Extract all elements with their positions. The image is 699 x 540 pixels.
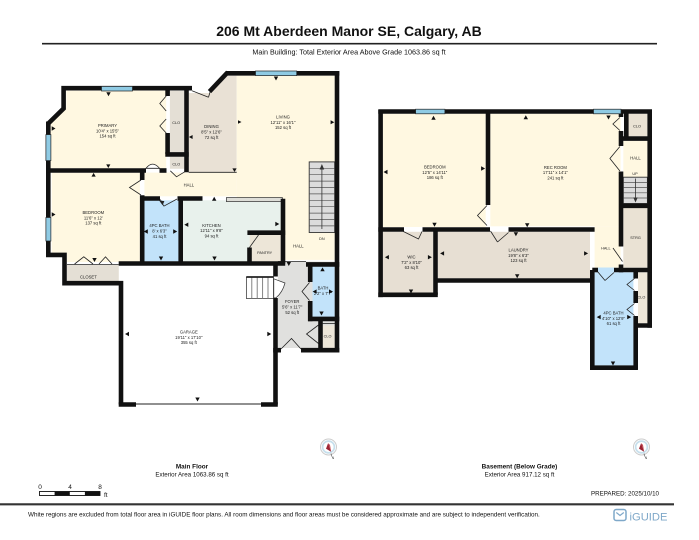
- svg-text:5'6" x 11'7": 5'6" x 11'7": [282, 305, 303, 310]
- svg-text:8: 8: [98, 484, 102, 491]
- svg-text:4'10" x 12'9": 4'10" x 12'9": [602, 316, 625, 321]
- svg-text:8'5" x 12'6": 8'5" x 12'6": [201, 130, 222, 135]
- svg-text:152 sq ft: 152 sq ft: [275, 125, 292, 130]
- svg-text:DN: DN: [319, 237, 325, 241]
- svg-text:LAUNDRY: LAUNDRY: [509, 248, 529, 253]
- svg-text:CLO: CLO: [172, 121, 180, 125]
- svg-text:4: 4: [68, 484, 72, 491]
- svg-text:12'5" x 14'11": 12'5" x 14'11": [422, 170, 447, 175]
- svg-text:72 sq ft: 72 sq ft: [205, 135, 220, 140]
- svg-text:WIC: WIC: [407, 255, 415, 260]
- svg-text:41 sq ft: 41 sq ft: [153, 234, 168, 239]
- svg-text:123 sq ft: 123 sq ft: [510, 258, 527, 263]
- svg-text:94 sq ft: 94 sq ft: [205, 234, 220, 239]
- svg-text:12'11" x 16'1": 12'11" x 16'1": [271, 120, 296, 125]
- svg-text:BATH: BATH: [318, 286, 329, 291]
- svg-text:CLOSET: CLOSET: [80, 274, 97, 279]
- svg-text:7'2" x 8'10": 7'2" x 8'10": [401, 260, 422, 265]
- svg-text:FOYER: FOYER: [285, 299, 299, 304]
- svg-text:355 sq ft: 355 sq ft: [181, 340, 198, 345]
- svg-text:4PC BATH: 4PC BATH: [149, 223, 169, 228]
- svg-text:White regions are excluded fro: White regions are excluded from total fl…: [28, 512, 540, 519]
- svg-text:206 Mt Aberdeen Manor SE, Calg: 206 Mt Aberdeen Manor SE, Calgary, AB: [216, 23, 482, 39]
- svg-text:CLO: CLO: [324, 335, 332, 339]
- svg-text:8' x 6'3": 8' x 6'3": [152, 229, 167, 234]
- svg-text:52 sq ft: 52 sq ft: [285, 310, 300, 315]
- svg-text:REC ROOM: REC ROOM: [544, 165, 568, 170]
- svg-text:12'11" x 9'8": 12'11" x 9'8": [200, 228, 223, 233]
- svg-text:PREPARED: 2025/10/10: PREPARED: 2025/10/10: [591, 491, 660, 498]
- svg-text:DINING: DINING: [204, 124, 219, 129]
- svg-text:CLO: CLO: [633, 125, 641, 129]
- svg-text:LIVING: LIVING: [276, 115, 290, 120]
- svg-text:CLO: CLO: [637, 296, 645, 300]
- svg-text:BEDROOM: BEDROOM: [424, 165, 446, 170]
- svg-text:11'6" x 12': 11'6" x 12': [84, 215, 103, 220]
- svg-text:4PC BATH: 4PC BATH: [603, 311, 623, 316]
- svg-text:137 sq ft: 137 sq ft: [85, 221, 102, 226]
- svg-text:10'4" x 15'5": 10'4" x 15'5": [96, 128, 119, 133]
- svg-text:2'2" x 7'7": 2'2" x 7'7": [314, 291, 333, 296]
- svg-text:HALL: HALL: [630, 155, 641, 160]
- svg-text:KITCHEN: KITCHEN: [202, 223, 220, 228]
- svg-text:19'11" x 17'10": 19'11" x 17'10": [175, 335, 203, 340]
- svg-text:0: 0: [38, 484, 42, 491]
- svg-text:Basement (Below Grade): Basement (Below Grade): [482, 464, 558, 471]
- svg-text:154 sq ft: 154 sq ft: [99, 134, 116, 139]
- svg-text:HALL: HALL: [184, 183, 195, 188]
- svg-text:19'8" x 6'3": 19'8" x 6'3": [508, 253, 529, 258]
- svg-text:GARAGE: GARAGE: [180, 330, 198, 335]
- svg-text:ft: ft: [104, 492, 108, 499]
- svg-text:61 sq ft: 61 sq ft: [607, 321, 622, 326]
- svg-text:UP: UP: [632, 172, 638, 176]
- svg-text:17'11" x 14'1": 17'11" x 14'1": [543, 170, 568, 175]
- svg-text:Main Floor: Main Floor: [176, 464, 209, 471]
- svg-text:CLO: CLO: [172, 162, 180, 166]
- svg-text:STRG: STRG: [630, 236, 641, 240]
- svg-text:Main Building: Total Exterior: Main Building: Total Exterior Area Above…: [252, 48, 445, 57]
- svg-text:PRIMARY: PRIMARY: [98, 123, 117, 128]
- svg-text:iGUIDE: iGUIDE: [630, 511, 668, 523]
- svg-text:186 sq ft: 186 sq ft: [427, 175, 444, 180]
- svg-text:241 sq ft: 241 sq ft: [547, 175, 564, 180]
- svg-text:63 sq ft: 63 sq ft: [405, 265, 420, 270]
- svg-text:BEDROOM: BEDROOM: [82, 210, 104, 215]
- svg-text:Exterior Area 1063.86 sq ft: Exterior Area 1063.86 sq ft: [155, 471, 229, 478]
- svg-text:HALL: HALL: [601, 247, 611, 251]
- svg-text:HALL: HALL: [293, 243, 304, 248]
- svg-text:PANTRY: PANTRY: [257, 251, 273, 255]
- svg-text:Exterior Area 917.12 sq ft: Exterior Area 917.12 sq ft: [485, 471, 555, 478]
